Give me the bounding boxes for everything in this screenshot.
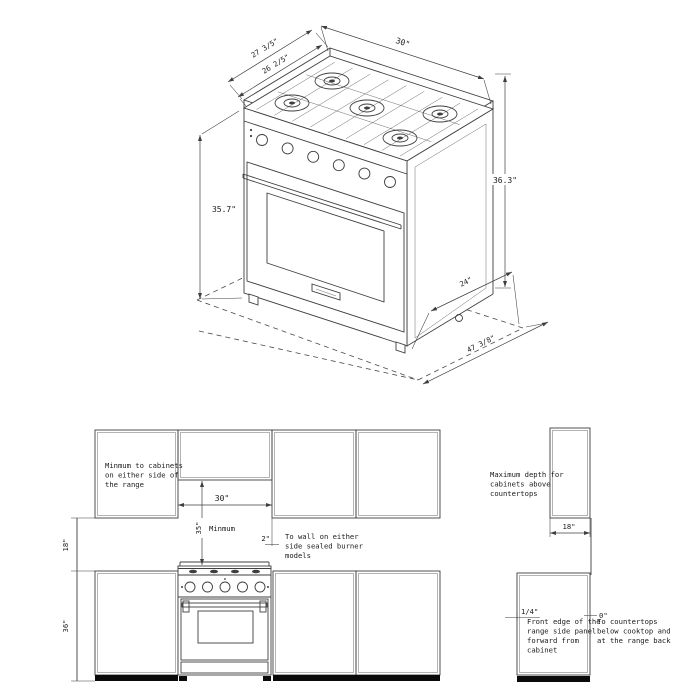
note-max-depth: Maximum depth for cabinets above counter…: [490, 470, 564, 498]
svg-text:cabinets above: cabinets above: [490, 480, 551, 489]
toe-kick: [95, 675, 178, 681]
svg-text:models: models: [285, 551, 311, 560]
svg-text:forward from: forward from: [527, 636, 579, 645]
svg-text:cabinet: cabinet: [527, 646, 557, 655]
svg-text:range side panel: range side panel: [527, 627, 596, 636]
note-front-edge: Front edge of the range side panel forwa…: [527, 617, 601, 655]
svg-text:below cooktop and: below cooktop and: [597, 627, 671, 636]
dim-min-vertical-label: 35": [194, 522, 203, 535]
caster-wheel: [456, 315, 463, 322]
dim-counter-height-label: 36": [61, 620, 70, 633]
svg-text:side sealed burner: side sealed burner: [285, 542, 364, 551]
svg-text:countertops: countertops: [490, 489, 538, 498]
dim-counter-to-cabinet-label: 18": [61, 539, 70, 552]
toe-kick: [273, 675, 440, 681]
dimension-wall-side: 2": [261, 518, 279, 546]
dim-front-offset-label: 1/4": [521, 607, 538, 616]
installation-clearance-diagram: 30" 35" Minmum 2" 18" 36" 18": [0, 400, 700, 700]
note-countertop-contact: To countertops below cooktop and at the …: [597, 617, 671, 645]
dim-range-width-label: 30": [215, 494, 229, 503]
dim-depth-outer-label: 27 3/5": [249, 36, 280, 60]
dimension-counter-to-cabinet: 18": [61, 518, 95, 571]
isometric-range-drawing: 30" 27 3/5" 26 2/5" 36.3" 35.7" 24": [0, 0, 700, 400]
svg-text:at the range back: at the range back: [597, 636, 671, 645]
dimension-cabinet-depth: 18": [550, 518, 590, 537]
dim-wall-side-label: 2": [261, 534, 270, 543]
dimension-height-back: 36.3": [489, 74, 521, 288]
range-foot: [263, 676, 271, 681]
note-wall-clearance: To wall on either side sealed burner mod…: [285, 532, 364, 560]
range-foot: [179, 676, 187, 681]
svg-text:the range: the range: [105, 480, 144, 489]
svg-text:Front edge of the: Front edge of the: [527, 617, 601, 626]
dimension-counter-height: 36": [61, 571, 95, 681]
dimension-height-front: 35.7": [200, 111, 242, 299]
range-front-view: [178, 562, 271, 681]
dimension-floor-front: 47 3/8": [423, 322, 548, 384]
svg-text:Maximum depth for: Maximum depth for: [490, 470, 564, 479]
note-side-clearance: Minmum to cabinets on either side of the…: [105, 461, 183, 489]
dim-width-top-label: 30": [395, 36, 412, 49]
svg-text:To wall on either: To wall on either: [285, 532, 359, 541]
dim-cabinet-depth-label: 18": [563, 522, 576, 531]
svg-text:To countertops: To countertops: [597, 617, 658, 626]
toe-kick: [517, 676, 590, 682]
dim-height-front-label: 35.7": [212, 205, 236, 214]
svg-text:on either side of: on either side of: [105, 471, 179, 480]
cabinet-above-range: [178, 430, 272, 480]
dim-height-back-label: 36.3": [493, 176, 517, 185]
svg-text:Minmum to cabinets: Minmum to cabinets: [105, 461, 183, 470]
dimension-range-width: 30": [178, 494, 272, 505]
range-spec-sheet: 30" 27 3/5" 26 2/5" 36.3" 35.7" 24": [0, 0, 700, 700]
dim-min-vertical-word: Minmum: [209, 524, 235, 533]
dim-depth-inner-label: 26 2/5": [260, 52, 291, 76]
